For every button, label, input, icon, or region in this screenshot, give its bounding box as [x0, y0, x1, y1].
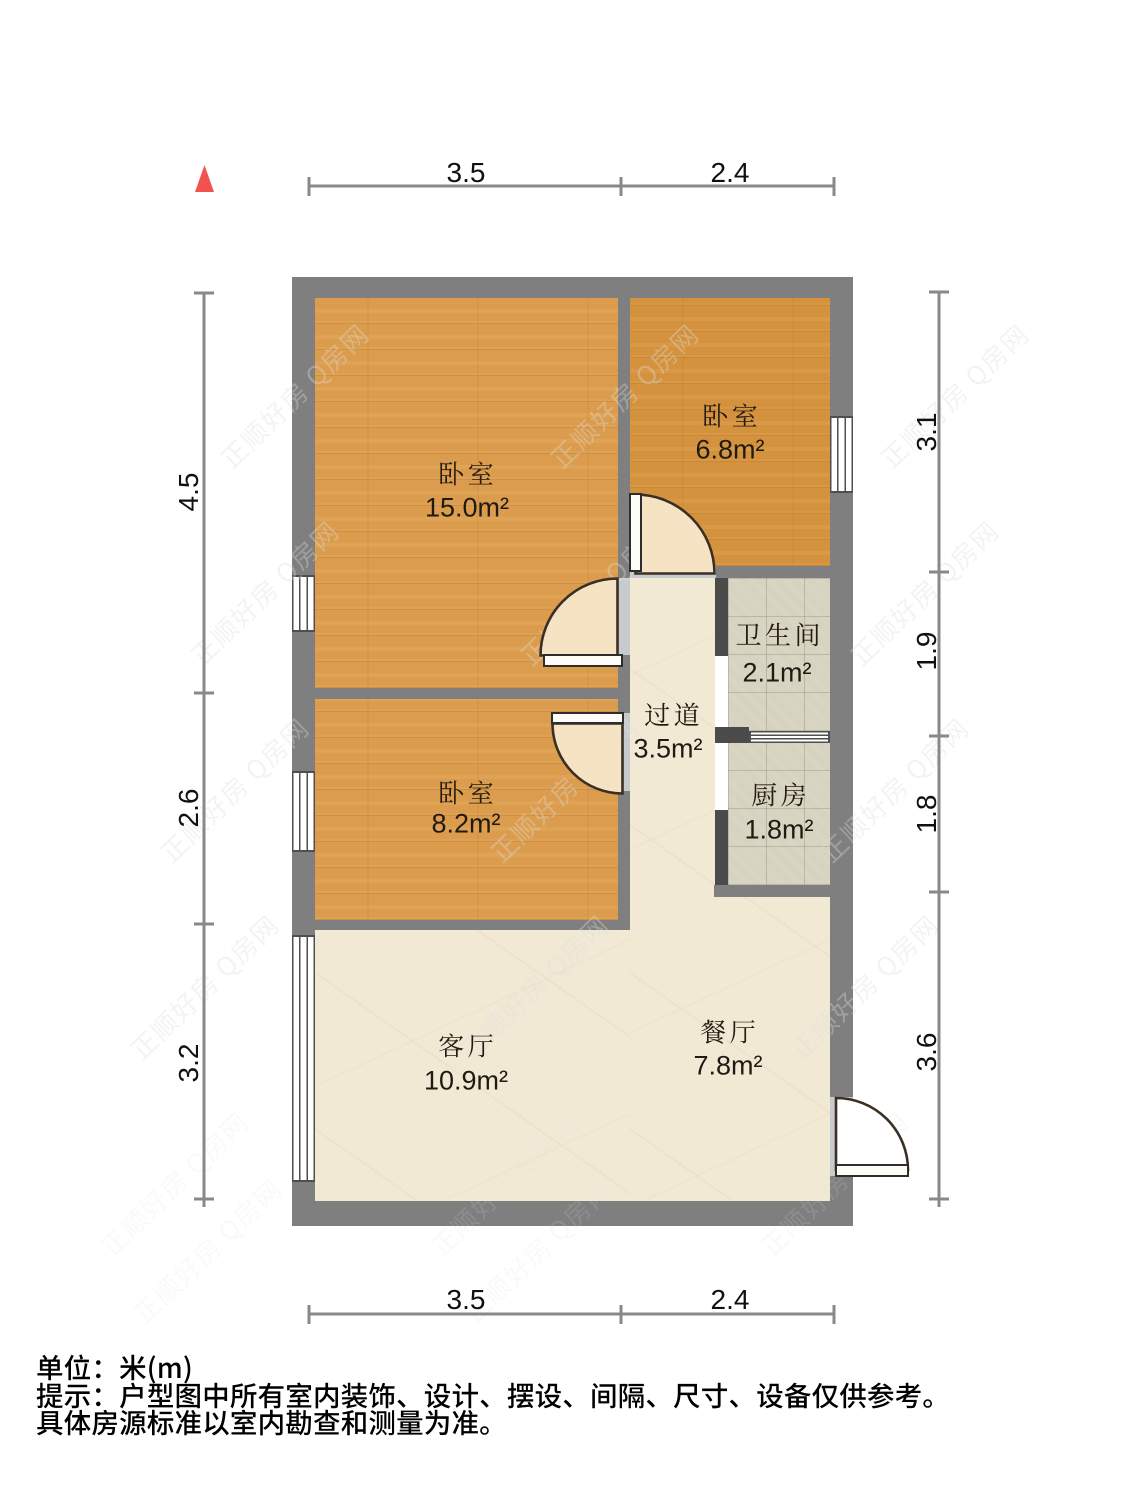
svg-text:3.5: 3.5 — [447, 157, 486, 188]
svg-text:1.9: 1.9 — [911, 632, 942, 671]
svg-text:7.8m²: 7.8m² — [693, 1051, 762, 1081]
svg-text:2.4: 2.4 — [711, 157, 750, 188]
svg-text:3.5m²: 3.5m² — [633, 734, 702, 764]
svg-text:2.4: 2.4 — [711, 1284, 750, 1315]
svg-text:10.9m²: 10.9m² — [424, 1066, 508, 1096]
svg-text:8.2m²: 8.2m² — [431, 809, 500, 839]
svg-text:2.1m²: 2.1m² — [742, 658, 811, 688]
svg-text:15.0m²: 15.0m² — [425, 493, 509, 523]
svg-text:6.8m²: 6.8m² — [695, 435, 764, 465]
svg-text:2.6: 2.6 — [173, 789, 204, 828]
svg-text:4.5: 4.5 — [173, 473, 204, 512]
svg-text:3.5: 3.5 — [447, 1284, 486, 1315]
svg-text:3.1: 3.1 — [911, 413, 942, 452]
svg-text:3.2: 3.2 — [173, 1044, 204, 1083]
svg-text:1.8m²: 1.8m² — [744, 815, 813, 845]
svg-text:1.8: 1.8 — [911, 795, 942, 834]
svg-text:3.6: 3.6 — [911, 1033, 942, 1072]
